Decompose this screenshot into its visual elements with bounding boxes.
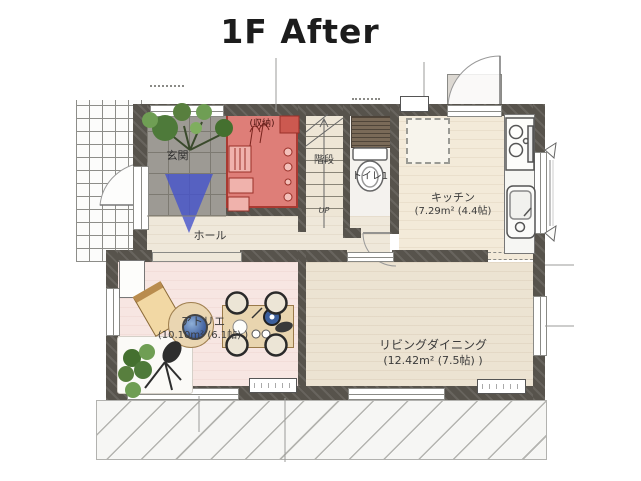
- front-door-opening: [133, 166, 149, 230]
- kitchen-fridge-space: [406, 118, 450, 164]
- kitchen-label: キッチン (7.29m² (4.4帖): [403, 191, 503, 218]
- back-door-opening: [447, 105, 502, 117]
- stairs-label: 階段: [303, 154, 345, 167]
- wall-hall-living-b: [392, 250, 488, 262]
- atelier-cabinet: [249, 378, 297, 393]
- living-cabinet: [477, 379, 526, 394]
- back-porch: [447, 74, 502, 108]
- wall-toilet-kitchen: [390, 104, 399, 234]
- window-living-right: [533, 296, 547, 356]
- terrace-hatch: [96, 400, 547, 460]
- wall-atelier-living: [298, 250, 306, 386]
- tick-dots-top-toilet: [352, 98, 380, 100]
- kitchen-area: (7.29m² (4.4帖): [403, 205, 503, 218]
- living-area: (12.42m² (7.5帖) ): [353, 354, 513, 368]
- wall-left-upper: [133, 104, 147, 168]
- genkan-floor: [147, 112, 226, 216]
- wall-stairs-toilet: [343, 104, 350, 232]
- atelier-name: アトリエ: [128, 315, 278, 329]
- hall-label: ホール: [180, 229, 240, 243]
- window-left-atelier: [106, 288, 120, 336]
- living-name: リビングダイニング: [353, 338, 513, 354]
- kitchen-name: キッチン: [403, 191, 503, 205]
- sliding-door-hall-living: [347, 252, 394, 262]
- opening-hall-atelier: [152, 252, 242, 262]
- window-top-genkan: [150, 105, 224, 117]
- genkan-label: 玄関: [155, 149, 200, 163]
- atelier-area: (10.10m² (6.1帖) ): [128, 329, 278, 342]
- utility-box: [400, 96, 429, 112]
- toilet-shelf-louver: [351, 116, 391, 148]
- atelier-label: アトリエ (10.10m² (6.1帖) ): [128, 315, 278, 342]
- living-label: リビングダイニング (12.42m² (7.5帖) ): [353, 338, 513, 368]
- plan-title: 1F After: [0, 12, 600, 51]
- wall-hall-atelier: [240, 250, 298, 262]
- window-kitchen-right: [533, 152, 547, 234]
- closet-label: (収納): [230, 119, 294, 131]
- toilet-label: トイレ1: [342, 170, 398, 183]
- floor-plan-canvas: 1F After: [0, 0, 641, 481]
- window-bottom-living: [348, 388, 445, 400]
- stairs-up-label: UP: [310, 206, 338, 216]
- tick-dots-top-left: [150, 85, 184, 87]
- wall-toilet-stub: [343, 228, 361, 238]
- wall-closet-bottom: [226, 208, 302, 216]
- kitchen-counter: [504, 114, 535, 254]
- wall-hall-living-a: [306, 250, 347, 262]
